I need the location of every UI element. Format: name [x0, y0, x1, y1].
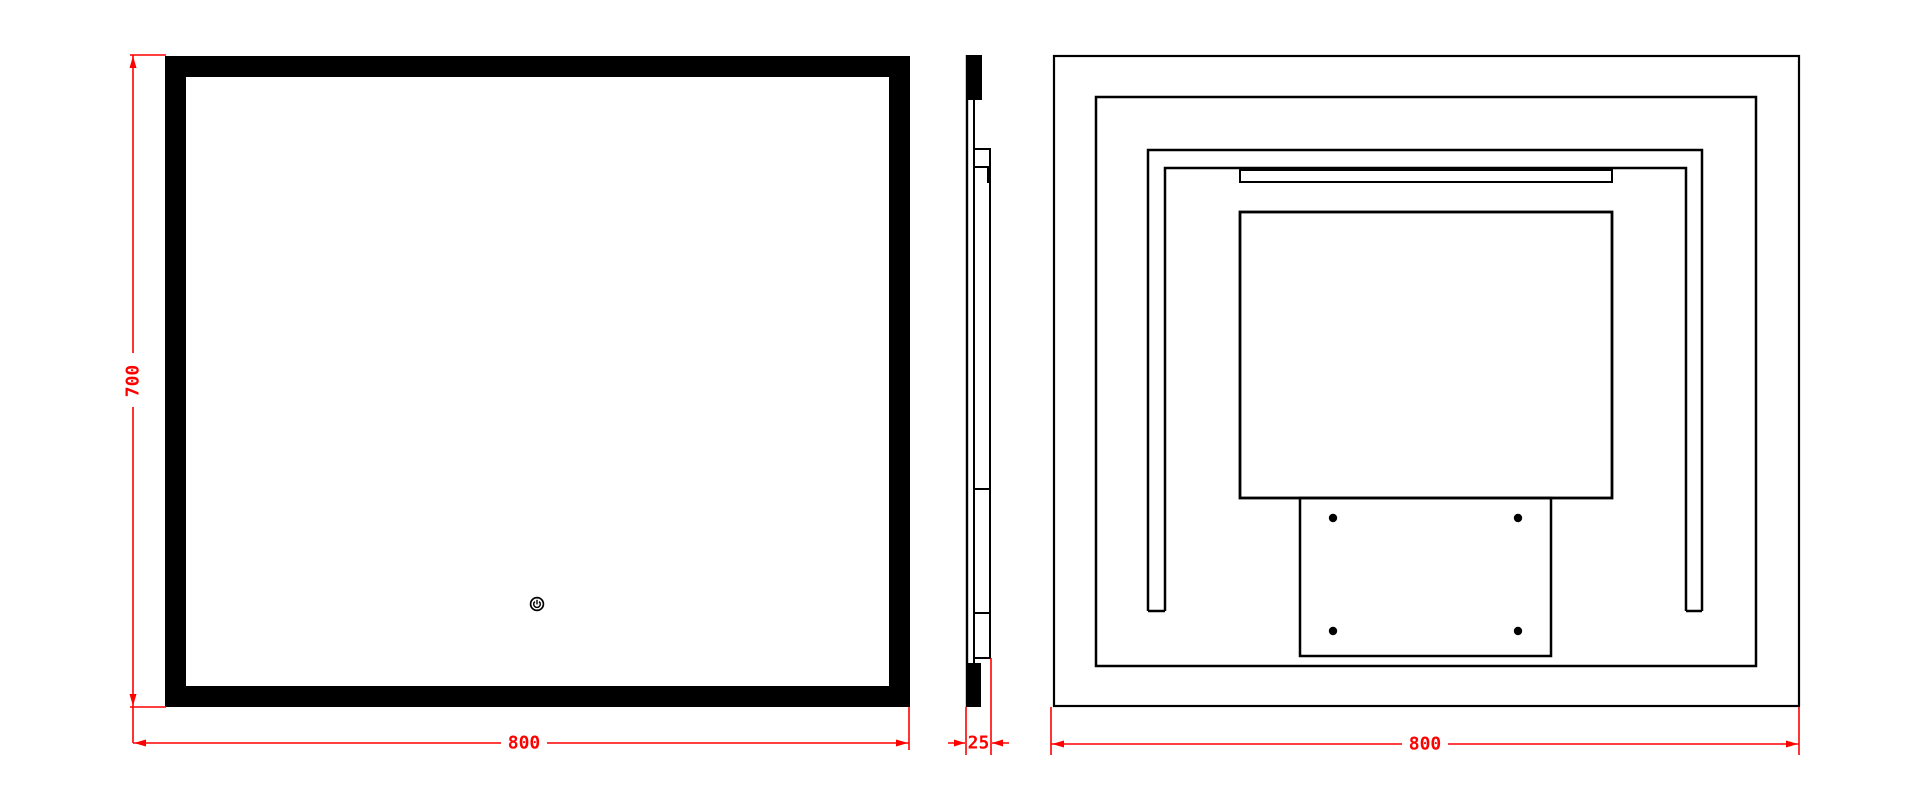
back-view: [1054, 56, 1799, 706]
screw-hole: [1329, 627, 1337, 635]
dimension-label-height: 700: [123, 365, 144, 398]
backpanel-dividers: [973, 489, 991, 658]
frame-section-bottom: [966, 663, 981, 707]
dimension-back-width: 800: [1051, 707, 1799, 755]
side-view: [966, 55, 991, 707]
dimension-label-back-width: 800: [1409, 734, 1442, 755]
frame-section-top: [966, 55, 982, 100]
mirror-frame: [165, 56, 910, 707]
screw-hole: [1514, 514, 1522, 522]
dimension-front-height: 700: [123, 55, 167, 743]
led-channel: [1148, 150, 1702, 611]
dimension-label-front-width: 800: [508, 733, 541, 754]
technical-drawing-canvas: 700 800 25: [0, 0, 1920, 797]
dimension-label-depth: 25: [968, 733, 990, 754]
mounting-plate: [1300, 498, 1551, 656]
dimension-front-width: 800: [133, 707, 909, 754]
screw-hole: [1329, 514, 1337, 522]
front-view: [165, 56, 910, 707]
power-icon: [531, 598, 544, 611]
screw-hole: [1514, 627, 1522, 635]
led-strip: [1240, 170, 1612, 182]
driver-box: [1240, 212, 1612, 498]
backpanel-top-detail: [973, 149, 991, 183]
